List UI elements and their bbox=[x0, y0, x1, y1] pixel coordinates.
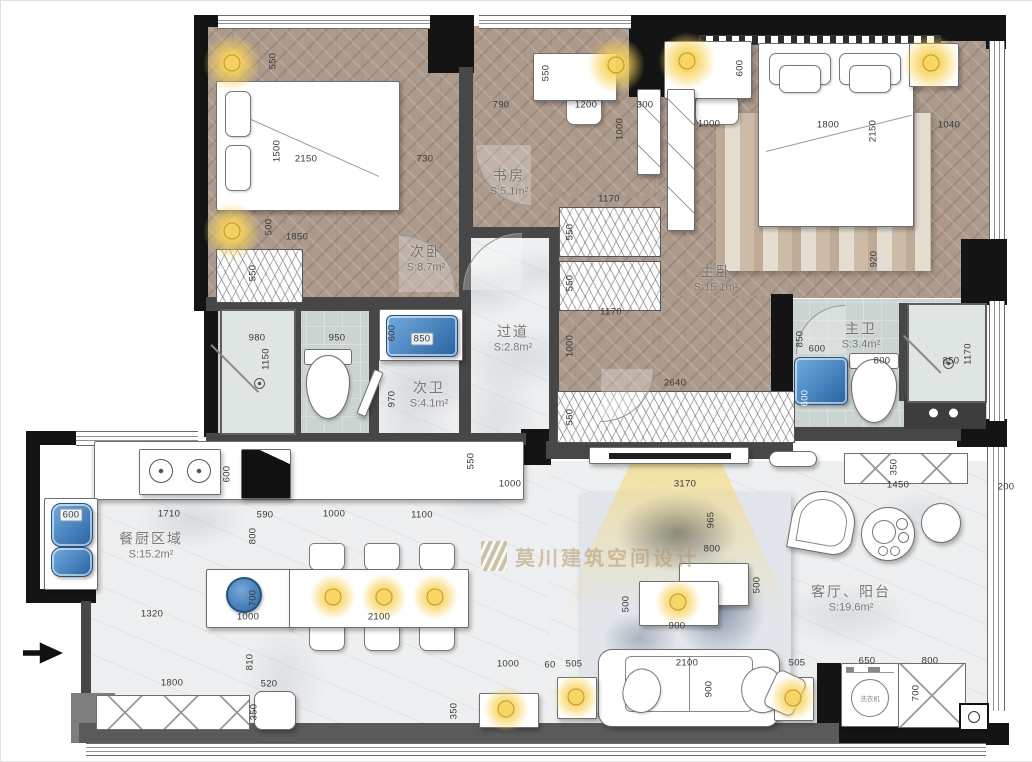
entry-arrow-icon bbox=[23, 639, 63, 667]
pillow bbox=[225, 91, 251, 137]
dimension-label: 300 bbox=[637, 100, 654, 111]
dimension-label: 1710 bbox=[158, 509, 180, 520]
wall-segment bbox=[459, 67, 473, 231]
wall-segment bbox=[26, 431, 40, 603]
dimension-label: 350 bbox=[249, 704, 260, 721]
dimension-label: 2150 bbox=[295, 154, 317, 165]
dimension-label: 600 bbox=[800, 390, 811, 407]
dimension-label: 1200 bbox=[575, 100, 597, 111]
wall-segment bbox=[771, 427, 961, 441]
dimension-label: 810 bbox=[245, 654, 256, 671]
chair bbox=[309, 543, 345, 571]
room-label-master: 主卧S:15.1m² bbox=[694, 263, 739, 294]
stove-burner-icon bbox=[187, 459, 211, 483]
ceiling-light-icon bbox=[310, 574, 356, 620]
floor-plan: 洗衣机 次卧S:8.7m² 书房S:5.1m² 主卧S:15.1m² 主卫S:3… bbox=[0, 0, 1032, 762]
dimension-label: 500 bbox=[621, 596, 632, 613]
dimension-label: 1170 bbox=[598, 194, 620, 205]
wall-segment bbox=[428, 15, 474, 73]
dimension-label: 700 bbox=[911, 685, 922, 702]
dimension-label: 1170 bbox=[963, 343, 974, 365]
pillow bbox=[849, 65, 891, 93]
watermark-logo-icon bbox=[481, 541, 507, 571]
window bbox=[479, 15, 631, 29]
dimension-label: 2150 bbox=[868, 120, 879, 142]
dimension-label: 1170 bbox=[600, 307, 622, 318]
dimension-label: 600 bbox=[387, 325, 398, 342]
round-table bbox=[861, 507, 915, 561]
room-label-bath2: 次卫S:4.1m² bbox=[410, 379, 449, 410]
dimension-label: 900 bbox=[704, 681, 715, 698]
dimension-label: 1040 bbox=[938, 120, 960, 131]
room-label-living: 客厅、阳台S:19.6m² bbox=[811, 583, 891, 614]
dimension-label: 1100 bbox=[411, 510, 433, 521]
dimension-label: 2640 bbox=[664, 378, 686, 389]
dimension-label: 1150 bbox=[261, 348, 272, 370]
dimension-label: 200 bbox=[998, 482, 1015, 493]
dimension-label: 800 bbox=[922, 656, 939, 667]
dimension-label: 550 bbox=[541, 65, 552, 82]
ceiling-light-icon bbox=[770, 675, 816, 721]
dimension-label: 1000 bbox=[497, 659, 519, 670]
ceiling-light-icon bbox=[658, 32, 716, 90]
dimension-label: 1850 bbox=[286, 232, 308, 243]
dimension-label: 590 bbox=[257, 510, 274, 521]
watermark-text: 莫川建筑空间设计 bbox=[515, 542, 699, 571]
room-label-master-bath: 主卫S:3.4m² bbox=[842, 320, 881, 351]
dimension-label: 800 bbox=[248, 528, 259, 545]
dimension-label: 730 bbox=[417, 154, 434, 165]
kitchen-fridge bbox=[241, 449, 291, 499]
dimension-label: 790 bbox=[493, 100, 510, 111]
dimension-label: 970 bbox=[387, 391, 398, 408]
dimension-label: 600 bbox=[735, 60, 746, 77]
master-wardrobe bbox=[557, 391, 795, 443]
watermark: 莫川建筑空间设计 bbox=[481, 541, 699, 571]
dimension-label: 980 bbox=[249, 333, 266, 344]
dimension-label: 1000 bbox=[237, 612, 259, 623]
dimension-label: 520 bbox=[261, 679, 278, 690]
chair bbox=[419, 543, 455, 571]
ceiling-light-icon bbox=[902, 34, 960, 92]
ceiling-light-icon bbox=[412, 574, 458, 620]
dimension-label: 1000 bbox=[323, 509, 345, 520]
dimension-label: 1000 bbox=[565, 335, 576, 357]
dimension-label: 550 bbox=[248, 265, 259, 282]
wall-segment bbox=[817, 663, 841, 727]
room-label-bedroom2: 次卧S:8.7m² bbox=[407, 243, 446, 274]
dimension-label: 550 bbox=[565, 409, 576, 426]
dimension-label: 1320 bbox=[141, 609, 163, 620]
wall-segment bbox=[899, 303, 907, 401]
dimension-label: 550 bbox=[565, 224, 576, 241]
washing-machine: 洗衣机 bbox=[841, 663, 899, 727]
dimension-label: 600 bbox=[809, 344, 826, 355]
dimension-label: 550 bbox=[268, 53, 279, 70]
ceiling-light-icon bbox=[483, 686, 529, 732]
dimension-label: 600 bbox=[222, 466, 233, 483]
entry-bench bbox=[254, 691, 296, 730]
dimension-label: 2100 bbox=[676, 658, 698, 669]
tv bbox=[609, 453, 731, 459]
ceiling-light-icon bbox=[587, 36, 645, 94]
dimension-label: 700 bbox=[248, 590, 259, 607]
dimension-label: 505 bbox=[789, 658, 806, 669]
bath2-shower bbox=[220, 309, 296, 435]
window bbox=[218, 15, 430, 29]
dimension-label: 850 bbox=[411, 333, 434, 346]
dimension-label: 1800 bbox=[817, 120, 839, 131]
ceiling-light-icon bbox=[203, 34, 261, 92]
laundry-cabinet bbox=[898, 663, 966, 728]
dimension-label: 1000 bbox=[499, 479, 521, 490]
ceiling-light-icon bbox=[203, 202, 261, 260]
wall-segment bbox=[961, 239, 1007, 305]
master-bath-shower bbox=[907, 303, 987, 403]
room-label-dining-kitchen: 餐厨区域S:15.2m² bbox=[119, 530, 183, 561]
dimension-label: 800 bbox=[704, 544, 721, 555]
ceiling-light-icon bbox=[655, 579, 701, 625]
dimension-label: 350 bbox=[889, 459, 900, 476]
dimension-label: 600 bbox=[60, 509, 83, 522]
dimension-label: 900 bbox=[669, 621, 686, 632]
window bbox=[989, 301, 1005, 421]
dimension-label: 1000 bbox=[698, 119, 720, 130]
dimension-label: 500 bbox=[264, 219, 275, 236]
round-ottoman bbox=[921, 503, 961, 543]
dimension-label: 1500 bbox=[272, 140, 283, 162]
dimension-label: 650 bbox=[859, 656, 876, 667]
pillow bbox=[779, 65, 821, 93]
pillow bbox=[225, 145, 251, 191]
stove-burner-icon bbox=[149, 459, 173, 483]
dimension-label: 505 bbox=[566, 659, 583, 670]
bottom-cabinet bbox=[96, 695, 250, 730]
wall-segment bbox=[81, 601, 91, 696]
room-label-study: 书房S:5.1m² bbox=[490, 167, 529, 198]
dimension-label: 850 bbox=[943, 356, 960, 367]
window bbox=[86, 743, 986, 756]
dimension-label: 920 bbox=[869, 251, 880, 268]
dimension-label: 1450 bbox=[887, 480, 909, 491]
ceiling-light-icon bbox=[553, 674, 599, 720]
window bbox=[989, 41, 1005, 239]
wall-segment bbox=[204, 301, 218, 437]
dimension-label: 950 bbox=[329, 333, 346, 344]
floor-drain bbox=[959, 703, 989, 731]
master-entry-cabinet bbox=[667, 89, 695, 231]
dimension-label: 550 bbox=[565, 275, 576, 292]
chair bbox=[364, 543, 400, 571]
dimension-label: 350 bbox=[449, 703, 460, 720]
dimension-label: 850 bbox=[795, 331, 806, 348]
dimension-label: 800 bbox=[874, 356, 891, 367]
dimension-label: 1000 bbox=[615, 118, 626, 140]
dimension-label: 500 bbox=[752, 577, 763, 594]
dimension-label: 3170 bbox=[674, 479, 696, 490]
room-label-corridor: 过道S:2.8m² bbox=[494, 323, 533, 354]
dimension-label: 550 bbox=[466, 453, 477, 470]
kitchen-sink-2 bbox=[51, 547, 93, 577]
dimension-label: 2100 bbox=[368, 612, 390, 623]
living-column bbox=[769, 451, 817, 467]
washer-label: 洗衣机 bbox=[860, 693, 880, 703]
dimension-label: 1800 bbox=[161, 678, 183, 689]
dimension-label: 965 bbox=[706, 512, 717, 529]
dimension-label: 60 bbox=[544, 660, 555, 671]
